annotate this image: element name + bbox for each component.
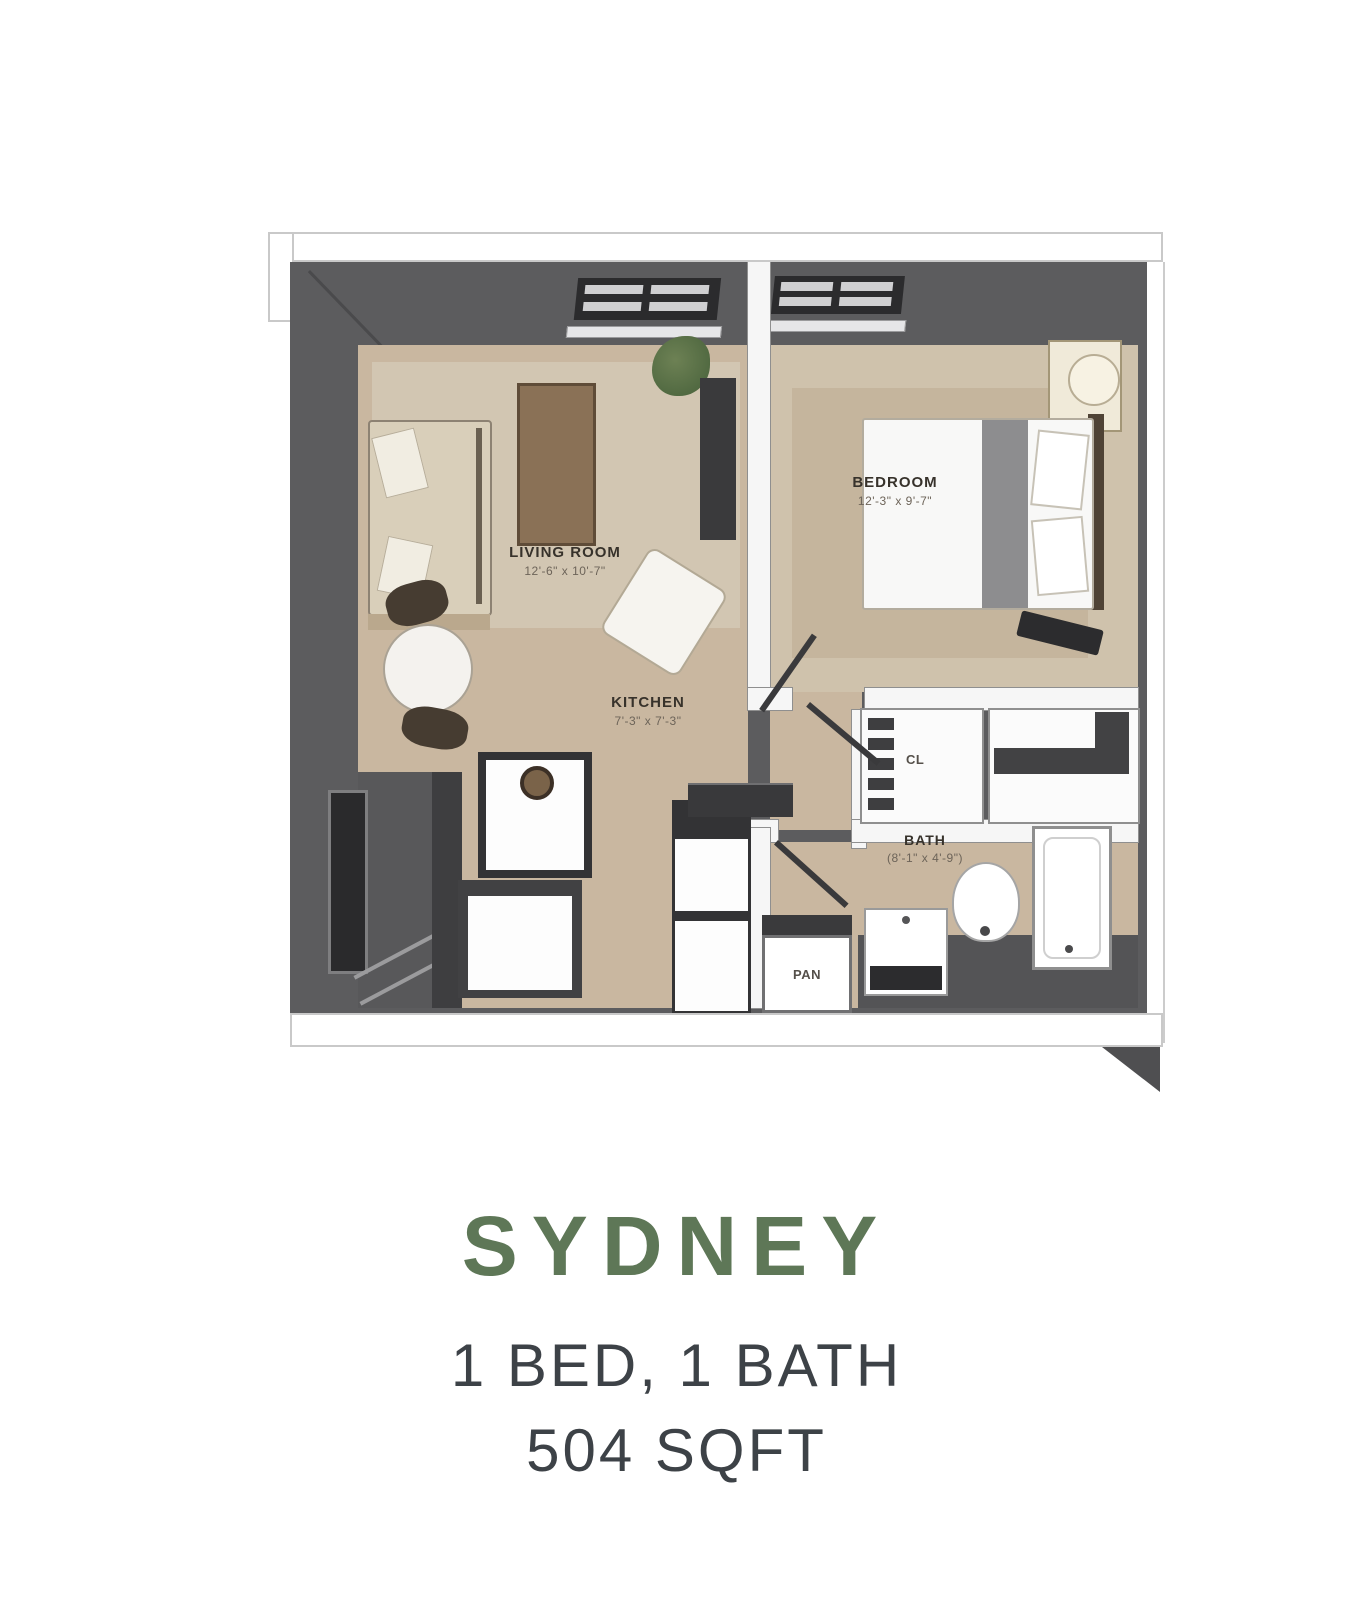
plan-name: SYDNEY xyxy=(0,1198,1353,1295)
closet-label: CL xyxy=(906,752,924,767)
window-sill xyxy=(566,326,722,338)
living-room-label: LIVING ROOM 12'-6" x 10'-7" xyxy=(455,544,675,578)
plan-area: 504 SQFT xyxy=(0,1416,1353,1485)
pillow xyxy=(1030,429,1090,510)
pantry-header xyxy=(762,915,852,935)
bathroom-vanity xyxy=(864,908,948,996)
round-table xyxy=(383,624,473,714)
pantry: PAN xyxy=(762,935,852,1013)
toilet xyxy=(952,862,1020,942)
living-room-window xyxy=(572,278,721,338)
bathtub-drain xyxy=(1065,945,1073,953)
closet: CL xyxy=(862,710,982,822)
plan-config: 1 BED, 1 BATH xyxy=(0,1331,1353,1400)
pantry-cabinet xyxy=(672,800,751,1013)
bottom-rail xyxy=(290,1013,1163,1047)
window-pane xyxy=(649,302,708,311)
toilet-base xyxy=(980,926,990,936)
kitchen-island xyxy=(688,783,793,817)
window-pane xyxy=(779,297,832,306)
range-oven xyxy=(478,752,592,878)
bedroom-dimensions: 12'-3" x 9'-7" xyxy=(795,494,995,508)
vanity-front xyxy=(870,966,942,990)
caption: SYDNEY 1 BED, 1 BATH 504 SQFT xyxy=(0,1198,1353,1485)
dining-table xyxy=(517,383,596,546)
window-pane xyxy=(840,282,893,291)
tv-console xyxy=(700,378,736,540)
bath-dimensions: (8'-1" x 4'-9") xyxy=(835,851,1015,865)
bedroom-label: BEDROOM 12'-3" x 9'-7" xyxy=(795,474,995,508)
pantry-label: PAN xyxy=(793,967,821,982)
window-pane xyxy=(583,302,642,311)
window-pane xyxy=(780,282,833,291)
refrigerator-front xyxy=(468,896,572,990)
window-pane xyxy=(650,285,709,294)
kitchen-name: KITCHEN xyxy=(548,694,748,711)
bath-label: BATH (8'-1" x 4'-9") xyxy=(835,832,1015,865)
closet-shelf xyxy=(868,778,894,790)
kitchen-label: KITCHEN 7'-3" x 7'-3" xyxy=(548,694,748,728)
bedroom-name: BEDROOM xyxy=(795,474,995,491)
bedroom-window xyxy=(769,276,905,332)
bathtub-rim xyxy=(1043,837,1101,959)
utility-counter-horizontal xyxy=(994,748,1129,774)
bedroom-south-wall-right xyxy=(865,688,1138,710)
cabinet-shelf-line xyxy=(675,911,748,921)
living-room-name: LIVING ROOM xyxy=(455,544,675,561)
window-pane xyxy=(839,297,892,306)
sofa-pillow xyxy=(371,428,429,499)
window-pane xyxy=(584,285,643,294)
refrigerator xyxy=(458,880,582,998)
bed xyxy=(862,418,1094,610)
pillow xyxy=(1031,516,1089,596)
utility-room xyxy=(990,710,1138,822)
entry-door-window xyxy=(328,790,368,974)
closet-shelf xyxy=(868,718,894,730)
bed-runner xyxy=(982,420,1028,608)
closet-shelf xyxy=(868,798,894,810)
kitchen-dimensions: 7'-3" x 7'-3" xyxy=(548,714,748,728)
floor-plan-page: CL BEDROOM 12'-3" x 9'-7" xyxy=(0,0,1353,1600)
closet-shelf xyxy=(868,738,894,750)
floor-plan: CL BEDROOM 12'-3" x 9'-7" xyxy=(270,230,1165,1100)
lamp xyxy=(1068,354,1120,406)
faucet xyxy=(902,916,910,924)
exterior-walls: CL BEDROOM 12'-3" x 9'-7" xyxy=(290,262,1147,1013)
top-rail xyxy=(272,232,1163,262)
right-rail xyxy=(1147,262,1165,1043)
corner-notch xyxy=(1102,1047,1160,1092)
living-bedroom-divider-wall xyxy=(748,262,770,710)
burner xyxy=(520,766,554,800)
bath-name: BATH xyxy=(835,832,1015,848)
bathtub xyxy=(1032,826,1112,970)
window-sill xyxy=(763,320,906,332)
living-room-dimensions: 12'-6" x 10'-7" xyxy=(455,564,675,578)
